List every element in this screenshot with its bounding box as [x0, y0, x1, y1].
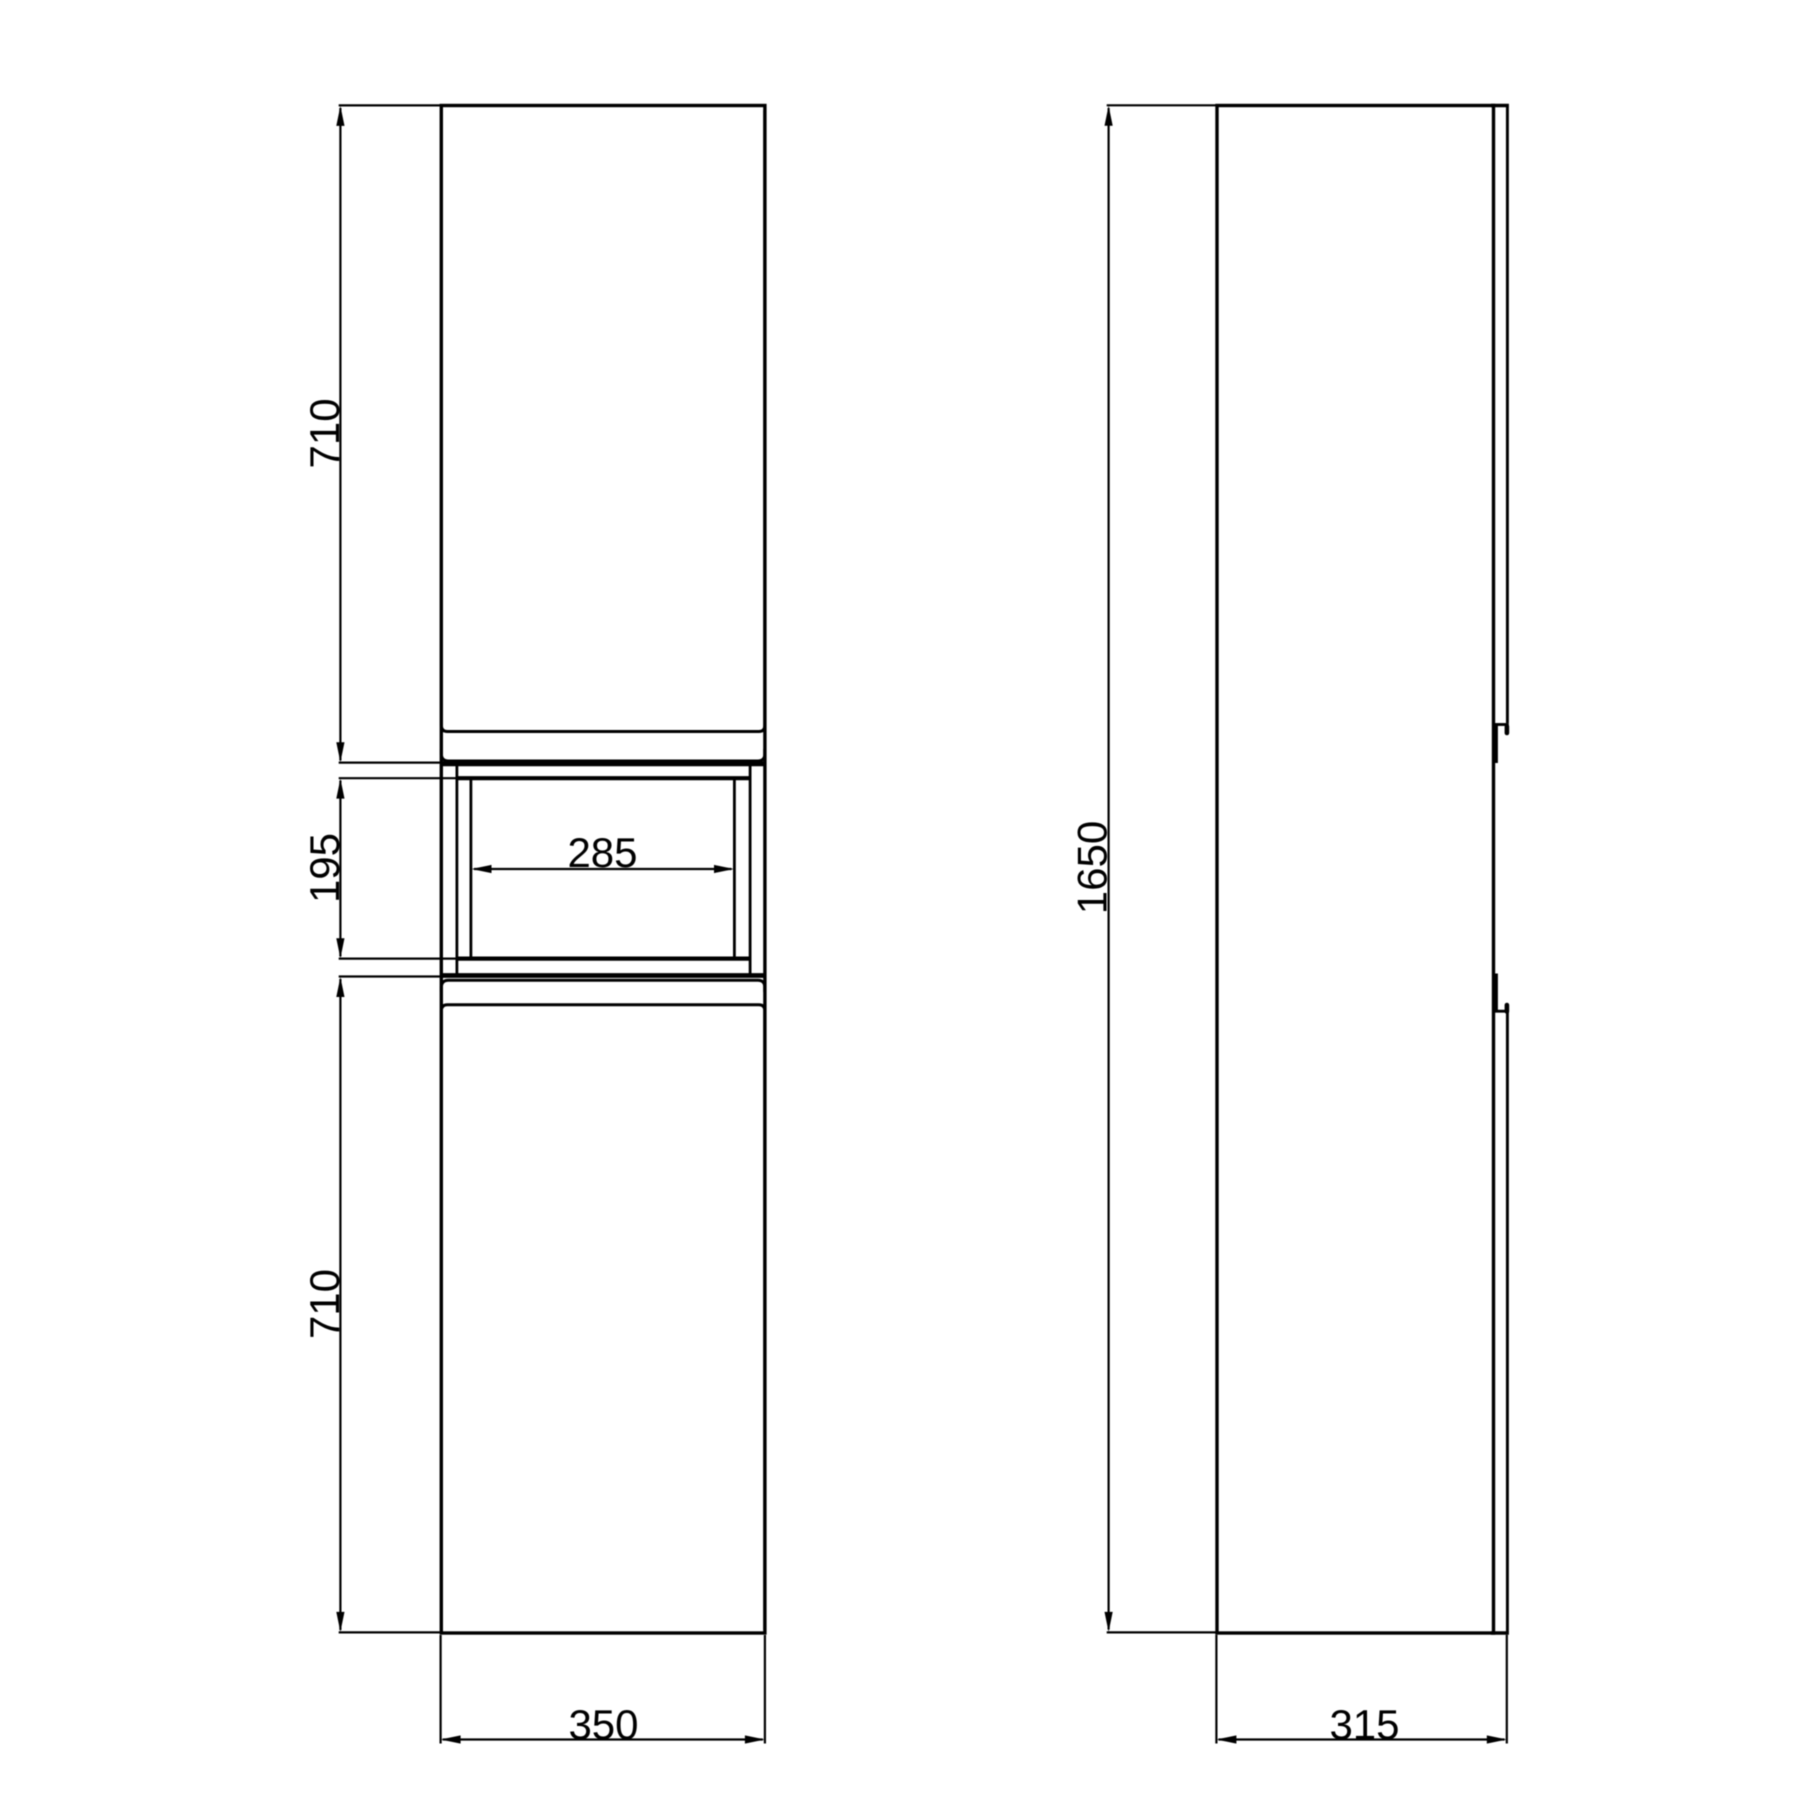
svg-text:710: 710	[301, 1269, 348, 1339]
svg-text:710: 710	[301, 398, 348, 468]
svg-text:1650: 1650	[1068, 821, 1115, 914]
svg-text:285: 285	[567, 829, 637, 876]
svg-text:350: 350	[568, 1701, 638, 1748]
svg-text:195: 195	[301, 833, 348, 903]
svg-text:315: 315	[1329, 1701, 1399, 1748]
